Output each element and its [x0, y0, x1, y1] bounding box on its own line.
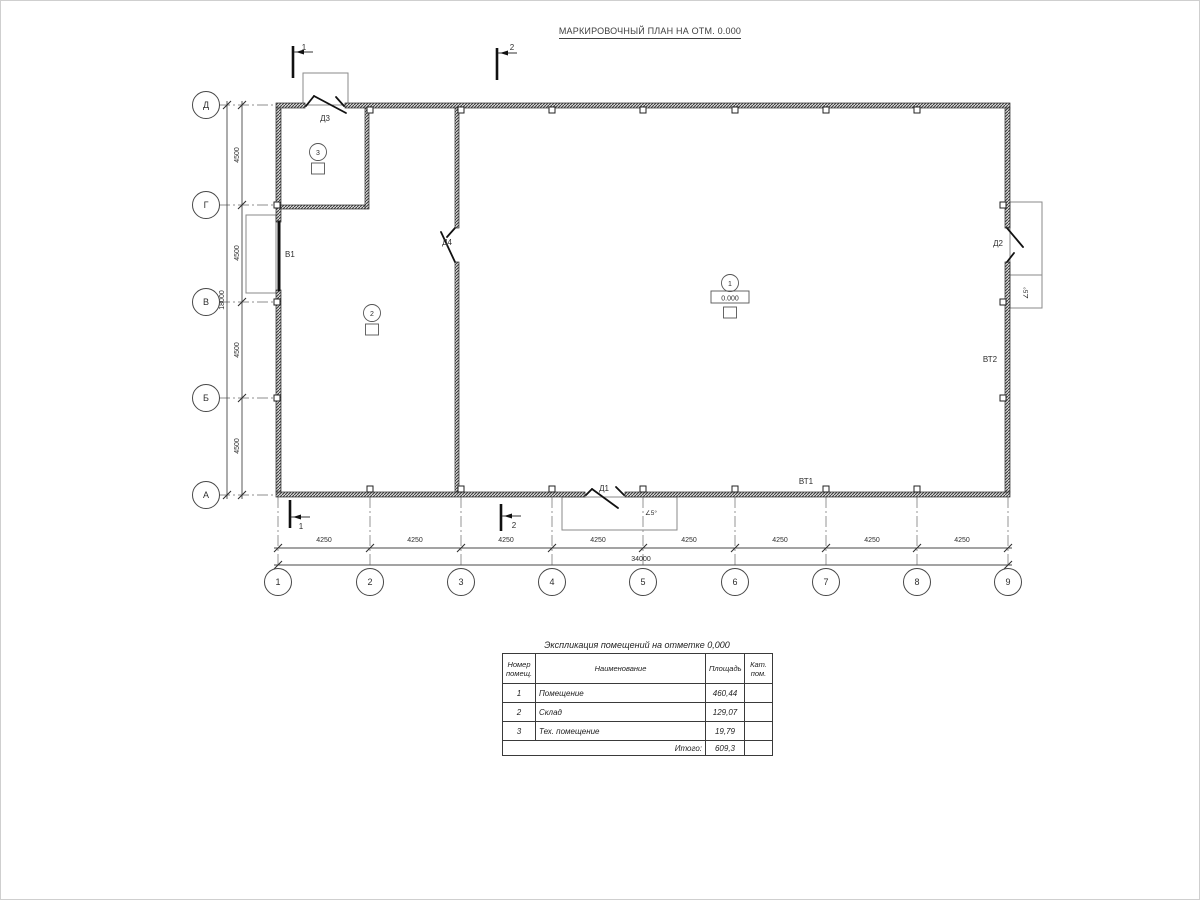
- dim-left-total: 18000: [219, 290, 226, 310]
- door-d2: [1007, 228, 1023, 262]
- axis-col-label-3: 4: [549, 577, 554, 587]
- dimension-labels: 4500 4500 4500 4500 18000 4250 4250 4250…: [219, 147, 970, 563]
- table-row: 3 Тех. помещение 19,79: [503, 722, 773, 741]
- door-label-d3: Д3: [320, 114, 330, 123]
- slope-label-right: ∠5°: [1022, 287, 1030, 299]
- total-category-cell: [745, 741, 773, 756]
- table-title: Экспликация помещений на отметке 0,000: [502, 640, 772, 650]
- room-1-number: 1: [728, 281, 732, 288]
- door-label-d1: Д1: [599, 484, 609, 493]
- room-marker-3: 3: [310, 144, 327, 175]
- axis-row-label-0: Д: [203, 100, 209, 110]
- room-3-number: 3: [316, 150, 320, 157]
- dim-bottom-segment-3: 4250: [590, 537, 606, 544]
- room-markers: 1 0.000 2 3: [310, 144, 750, 336]
- cell-room-category: [745, 703, 773, 722]
- dim-bottom-segment-2: 4250: [498, 537, 514, 544]
- axis-col-label-0: 1: [275, 577, 280, 587]
- col-header-number-l1: Номер: [506, 660, 532, 669]
- total-value: 609,3: [706, 741, 745, 756]
- col-header-category-l2: пом.: [748, 669, 769, 678]
- room-marker-1: 1 0.000: [711, 275, 749, 319]
- slope-label-bottom: ∠5°: [645, 509, 657, 517]
- structural-columns: [274, 107, 1006, 492]
- axis-row-label-2: В: [203, 297, 209, 307]
- door-symbols: [279, 96, 1023, 508]
- room3-wall-right: [365, 108, 369, 209]
- axis-col-label-2: 3: [458, 577, 463, 587]
- gate-label-v1: В1: [285, 250, 295, 259]
- axis-col-label-6: 7: [823, 577, 828, 587]
- dim-left-segment-0: 4500: [234, 147, 241, 163]
- table-row: 1 Помещение 460,44: [503, 684, 773, 703]
- dim-bottom-segment-5: 4250: [772, 537, 788, 544]
- door-label-d4: Д4: [442, 238, 452, 247]
- interior-wall-upper: [455, 108, 459, 228]
- axis-row-label-1: Г: [204, 200, 209, 210]
- dim-bottom-segment-1: 4250: [407, 537, 423, 544]
- section-mark-2-bottom: 2: [501, 504, 521, 531]
- axis-grid-lines: [219, 105, 1008, 569]
- dim-bottom-segment-6: 4250: [864, 537, 880, 544]
- cell-room-category: [745, 684, 773, 703]
- table-total-row: Итого: 609,3: [503, 741, 773, 756]
- door-label-d2: Д2: [993, 239, 1003, 248]
- gate-label-vt2: ВТ2: [983, 355, 998, 364]
- ramp-d1: [562, 497, 677, 530]
- section-1-label-bottom: 1: [299, 522, 304, 531]
- gate-label-vt1: ВТ1: [799, 477, 814, 486]
- col-header-name: Наименование: [536, 654, 706, 684]
- total-label: Итого:: [503, 741, 706, 756]
- building-walls: [276, 103, 1010, 497]
- col-header-category: Кат. пом.: [745, 654, 773, 684]
- axis-col-label-4: 5: [640, 577, 645, 587]
- door-labels: Д3 Д4 Д2 Д1 В1 ВТ1 ВТ2 ∠5° ∠5°: [285, 114, 1030, 517]
- cell-room-area: 19,79: [706, 722, 745, 741]
- col-header-number-l2: помещ.: [506, 669, 532, 678]
- dim-left-segment-2: 4500: [234, 342, 241, 358]
- room-2-number: 2: [370, 311, 374, 318]
- section-mark-2-top: 2: [497, 43, 517, 80]
- cell-room-name: Склад: [536, 703, 706, 722]
- cell-room-area: 460,44: [706, 684, 745, 703]
- dim-bottom-segment-4: 4250: [681, 537, 697, 544]
- gate-platform-v1: [246, 215, 276, 293]
- floor-plan-canvas: 1 2 1 2: [0, 0, 1200, 620]
- dim-left-segment-1: 4500: [234, 245, 241, 261]
- col-header-area: Площадь: [706, 654, 745, 684]
- dim-bottom-segment-0: 4250: [316, 537, 332, 544]
- cell-room-name: Помещение: [536, 684, 706, 703]
- cell-room-name: Тех. помещение: [536, 722, 706, 741]
- dim-left-segment-3: 4500: [234, 438, 241, 454]
- dim-bottom-segment-7: 4250: [954, 537, 970, 544]
- cell-room-number: 1: [503, 684, 536, 703]
- cell-room-number: 3: [503, 722, 536, 741]
- axis-col-label-5: 6: [732, 577, 737, 587]
- drawing-sheet: МАРКИРОВОЧНЫЙ ПЛАН НА ОТМ. 0.000: [0, 0, 1200, 900]
- room-1-elevation: 0.000: [721, 295, 739, 302]
- table-row: 2 Склад 129,07: [503, 703, 773, 722]
- section-2-label-bottom: 2: [512, 521, 517, 530]
- section-1-label-top: 1: [302, 43, 307, 52]
- cell-room-number: 2: [503, 703, 536, 722]
- room-marker-2: 2: [364, 305, 381, 336]
- section-mark-1-bottom: 1: [290, 500, 310, 531]
- axis-col-label-1: 2: [367, 577, 372, 587]
- interior-wall-lower: [455, 262, 459, 492]
- dimension-ticks: [223, 101, 1012, 569]
- axis-row-label-3: Б: [203, 393, 209, 403]
- section-2-label-top: 2: [510, 43, 515, 52]
- room3-wall-bottom: [281, 205, 365, 209]
- room-explication-table: Номер помещ. Наименование Площадь Кат. п…: [502, 653, 773, 756]
- col-header-number: Номер помещ.: [503, 654, 536, 684]
- cell-room-area: 129,07: [706, 703, 745, 722]
- axis-row-label-4: А: [203, 490, 209, 500]
- axis-bubbles: [193, 92, 1022, 596]
- cell-room-category: [745, 722, 773, 741]
- axis-col-label-7: 8: [914, 577, 919, 587]
- dim-bottom-total: 34000: [631, 556, 651, 563]
- col-header-category-l1: Кат.: [748, 660, 769, 669]
- axis-col-label-8: 9: [1005, 577, 1010, 587]
